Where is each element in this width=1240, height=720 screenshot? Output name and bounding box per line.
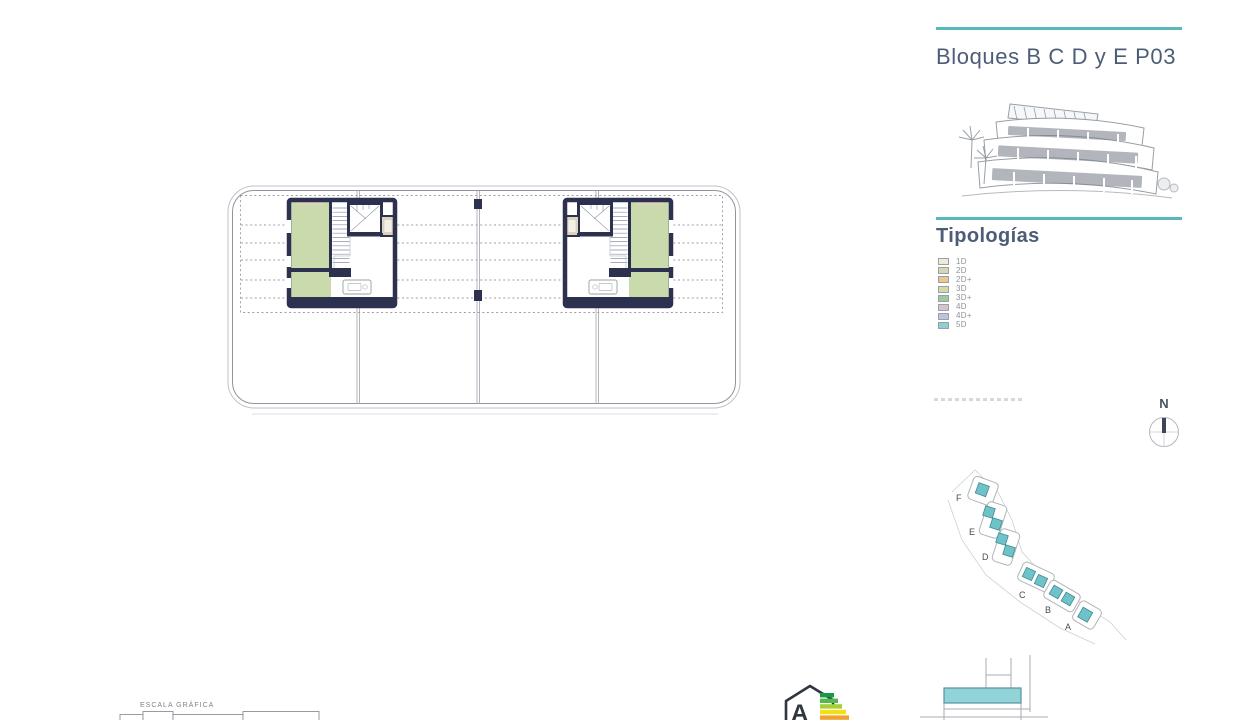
page-title: Bloques B C D y E P03 <box>936 44 1176 70</box>
legend-label: 3D+ <box>956 294 972 302</box>
energy-rating-letter: A <box>791 700 808 720</box>
legend-swatch <box>938 304 949 311</box>
legend-swatch <box>938 267 949 274</box>
legend-swatch <box>938 313 949 320</box>
fine-print-illegible <box>934 398 1022 401</box>
legend-swatch <box>938 295 949 302</box>
compass-icon <box>1146 412 1182 454</box>
legend-label: 3D <box>956 285 967 293</box>
legend-swatch <box>938 286 949 293</box>
svg-text:C: C <box>1019 590 1026 600</box>
energy-rating-bars <box>820 693 849 720</box>
legend-item: 3D+ <box>938 294 972 302</box>
typology-legend: 1D 2D 2D+ 3D 3D+ 4D 4D+ 5D <box>938 258 972 329</box>
legend-swatch <box>938 258 949 265</box>
legend-label: 1D <box>956 258 967 266</box>
legend-label: 4D+ <box>956 312 972 320</box>
legend-item: 4D+ <box>938 313 972 321</box>
scale-bar <box>112 708 357 720</box>
header-accent-line <box>936 27 1182 30</box>
legend-swatch <box>938 322 949 329</box>
svg-text:F: F <box>956 493 962 503</box>
site-block-labels: F E D C B A <box>956 493 1071 632</box>
apartment-unit-left <box>287 198 398 308</box>
typologies-heading: Tipologías <box>936 225 1040 248</box>
legend-swatch <box>938 276 949 283</box>
legend-label: 2D <box>956 267 967 275</box>
legend-item: 3D <box>938 285 972 293</box>
legend-item: 1D <box>938 258 972 266</box>
site-key-plan: F E D C B A <box>938 462 1133 647</box>
energy-rating-icon: A <box>778 682 856 720</box>
plan-sheet: Bloques B C D y E P03 Tipologías <box>0 0 1240 720</box>
legend-item: 2D+ <box>938 276 972 284</box>
north-label: N <box>1155 396 1173 411</box>
legend-label: 5D <box>956 321 967 329</box>
svg-text:A: A <box>1065 622 1071 632</box>
svg-text:E: E <box>969 527 975 537</box>
highlighted-floor-bar <box>944 688 1021 703</box>
svg-text:D: D <box>982 552 989 562</box>
legend-item: 2D <box>938 267 972 275</box>
legend-label: 4D <box>956 303 967 311</box>
legend-label: 2D+ <box>956 276 972 284</box>
typologies-accent-line <box>936 217 1182 220</box>
apartment-unit-right <box>563 198 674 308</box>
floor-level-section-diagram <box>912 648 1057 720</box>
svg-text:B: B <box>1045 605 1051 615</box>
legend-item: 4D <box>938 303 972 311</box>
floor-plan-drawing <box>222 181 743 419</box>
legend-item: 5D <box>938 322 972 330</box>
building-sketch-illustration <box>948 88 1186 214</box>
